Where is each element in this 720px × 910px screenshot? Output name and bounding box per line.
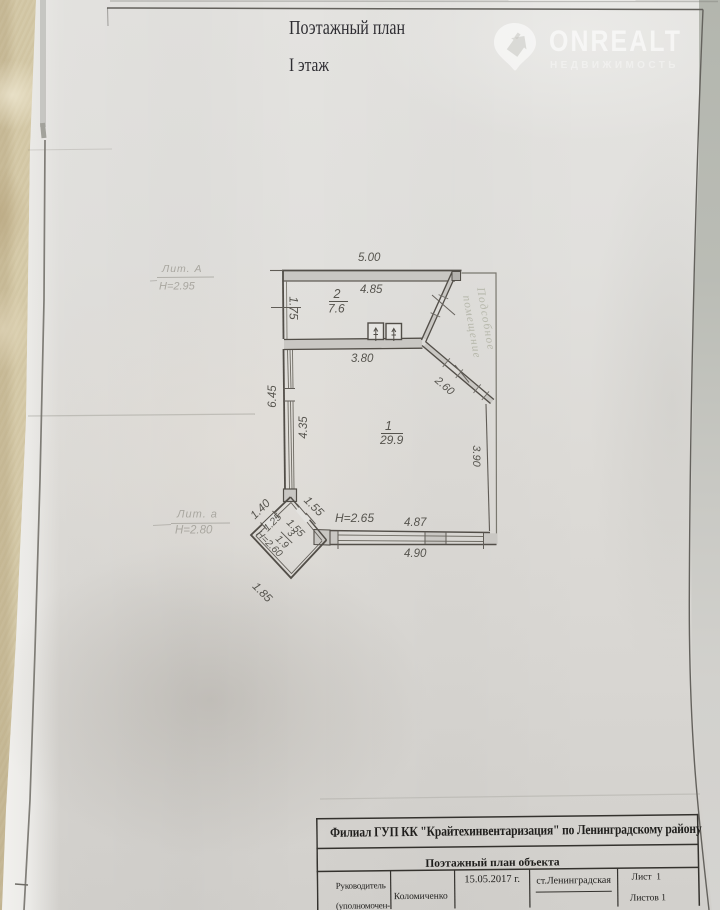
svg-text:4.35: 4.35 (298, 416, 310, 439)
svg-text:Лит. А: Лит. А (161, 263, 203, 275)
svg-text:6.45: 6.45 (267, 385, 279, 408)
svg-text:1: 1 (385, 419, 392, 433)
svg-text:Н=2.95: Н=2.95 (159, 281, 196, 293)
svg-text:4.85: 4.85 (360, 284, 383, 296)
svg-text:4.90: 4.90 (404, 548, 427, 560)
svg-text:Лит. а: Лит. а (176, 509, 218, 521)
svg-text:3.90: 3.90 (470, 445, 482, 467)
svg-text:Н=2.80: Н=2.80 (175, 525, 213, 537)
svg-text:29.9: 29.9 (379, 433, 404, 447)
svg-text:2: 2 (333, 287, 341, 301)
svg-text:Н=2.65: Н=2.65 (335, 511, 374, 525)
svg-text:3.80: 3.80 (351, 353, 374, 365)
svg-text:1.75: 1.75 (287, 296, 301, 320)
svg-text:4.87: 4.87 (404, 517, 427, 529)
svg-text:1.85: 1.85 (250, 581, 275, 606)
svg-text:2.60: 2.60 (432, 374, 457, 398)
svg-text:5.00: 5.00 (358, 252, 381, 264)
svg-text:7.6: 7.6 (328, 302, 345, 316)
